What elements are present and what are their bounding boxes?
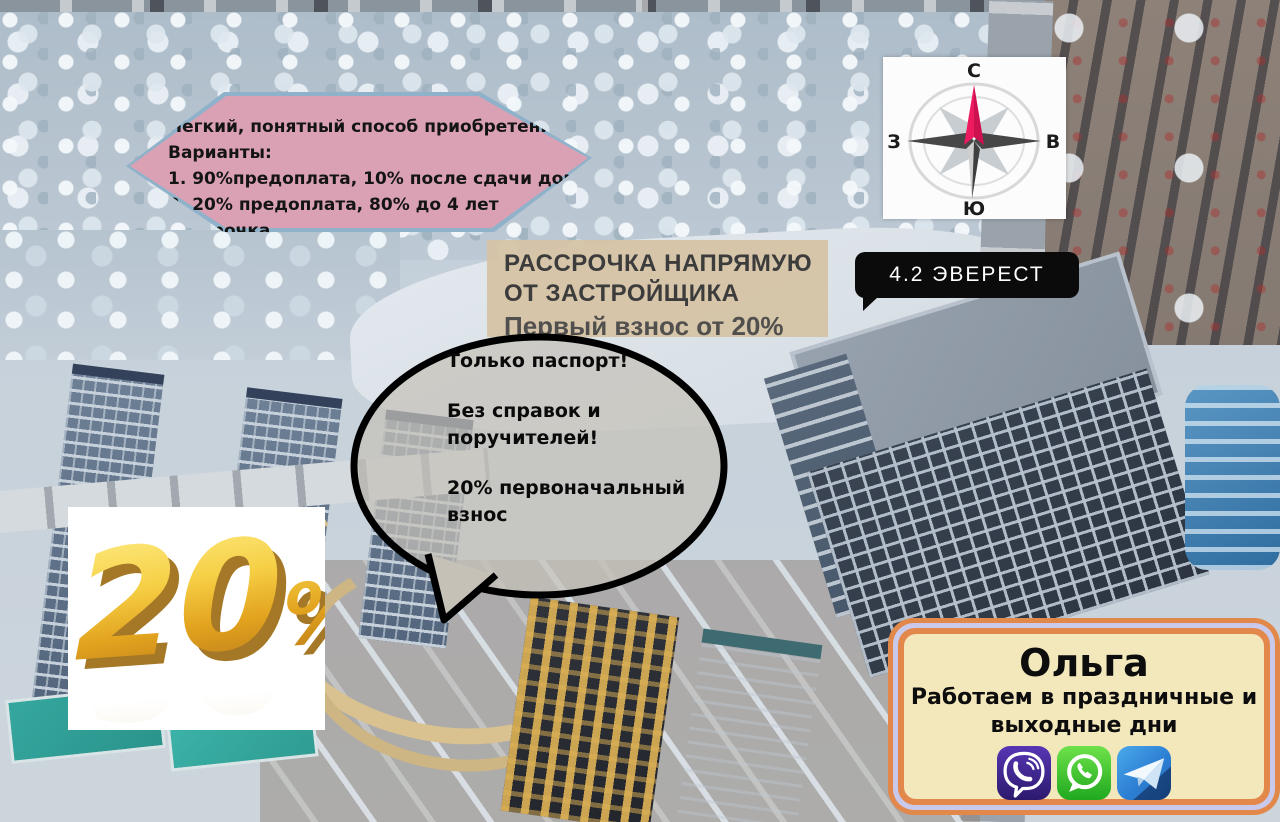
compass-west-label: З: [887, 131, 901, 153]
dark-building: [678, 629, 823, 822]
building-name-label: 4.2 ЭВЕРЕСТ: [855, 252, 1079, 298]
viber-icon[interactable]: [997, 746, 1051, 800]
contact-schedule-line2: выходные дни: [904, 712, 1264, 740]
whatsapp-icon[interactable]: [1057, 746, 1111, 800]
building-name-text: 4.2 ЭВЕРЕСТ: [889, 263, 1044, 287]
offer-option: 1. 90%предоплата, 10% после сдачи дома: [168, 166, 592, 192]
installment-heading-line1: РАССРОЧКА НАПРЯМУЮ: [504, 249, 828, 279]
speech-bubble-text: Только паспорт! Без справок и поручителе…: [447, 348, 717, 529]
bubble-line: Только паспорт!: [447, 348, 717, 375]
discount-badge-card: 20% 20% 20%: [68, 507, 325, 730]
offer-subtitle: Варианты:: [168, 140, 592, 166]
compass-rose-icon: С В Ю З: [883, 57, 1066, 219]
contact-card-ring: Ольга Работаем в праздничные и выходные …: [893, 623, 1275, 810]
compass-card: С В Ю З: [883, 57, 1066, 219]
lit-building: [501, 597, 680, 822]
installment-panel: РАССРОЧКА НАПРЯМУЮ ОТ ЗАСТРОЙЩИКА Первый…: [487, 240, 828, 337]
contact-card-inner-ring: Ольга Работаем в праздничные и выходные …: [898, 628, 1270, 805]
glass-building: [1185, 385, 1280, 570]
contact-card-body: Ольга Работаем в праздничные и выходные …: [904, 634, 1264, 799]
contact-name: Ольга: [904, 642, 1264, 684]
ad-poster: Легкий, понятный способ приобретения: Ва…: [0, 0, 1280, 822]
messenger-icons-row: [904, 746, 1264, 800]
bubble-line: 20% первоначальный: [447, 475, 717, 502]
compass-south-label: Ю: [963, 198, 985, 219]
installment-heading-line2: ОТ ЗАСТРОЙЩИКА: [504, 279, 828, 309]
discount-badge-value: 20%: [74, 507, 325, 694]
bubble-line: Без справок и: [447, 398, 717, 425]
bubble-line: поручителей!: [447, 425, 717, 452]
bubble-line: взнос: [447, 502, 717, 529]
contact-card: Ольга Работаем в праздничные и выходные …: [888, 618, 1280, 815]
compass-north-label: С: [967, 60, 981, 82]
compass-east-label: В: [1046, 131, 1060, 153]
telegram-icon[interactable]: [1117, 746, 1171, 800]
contact-schedule-line1: Работаем в праздничные и: [904, 684, 1264, 712]
